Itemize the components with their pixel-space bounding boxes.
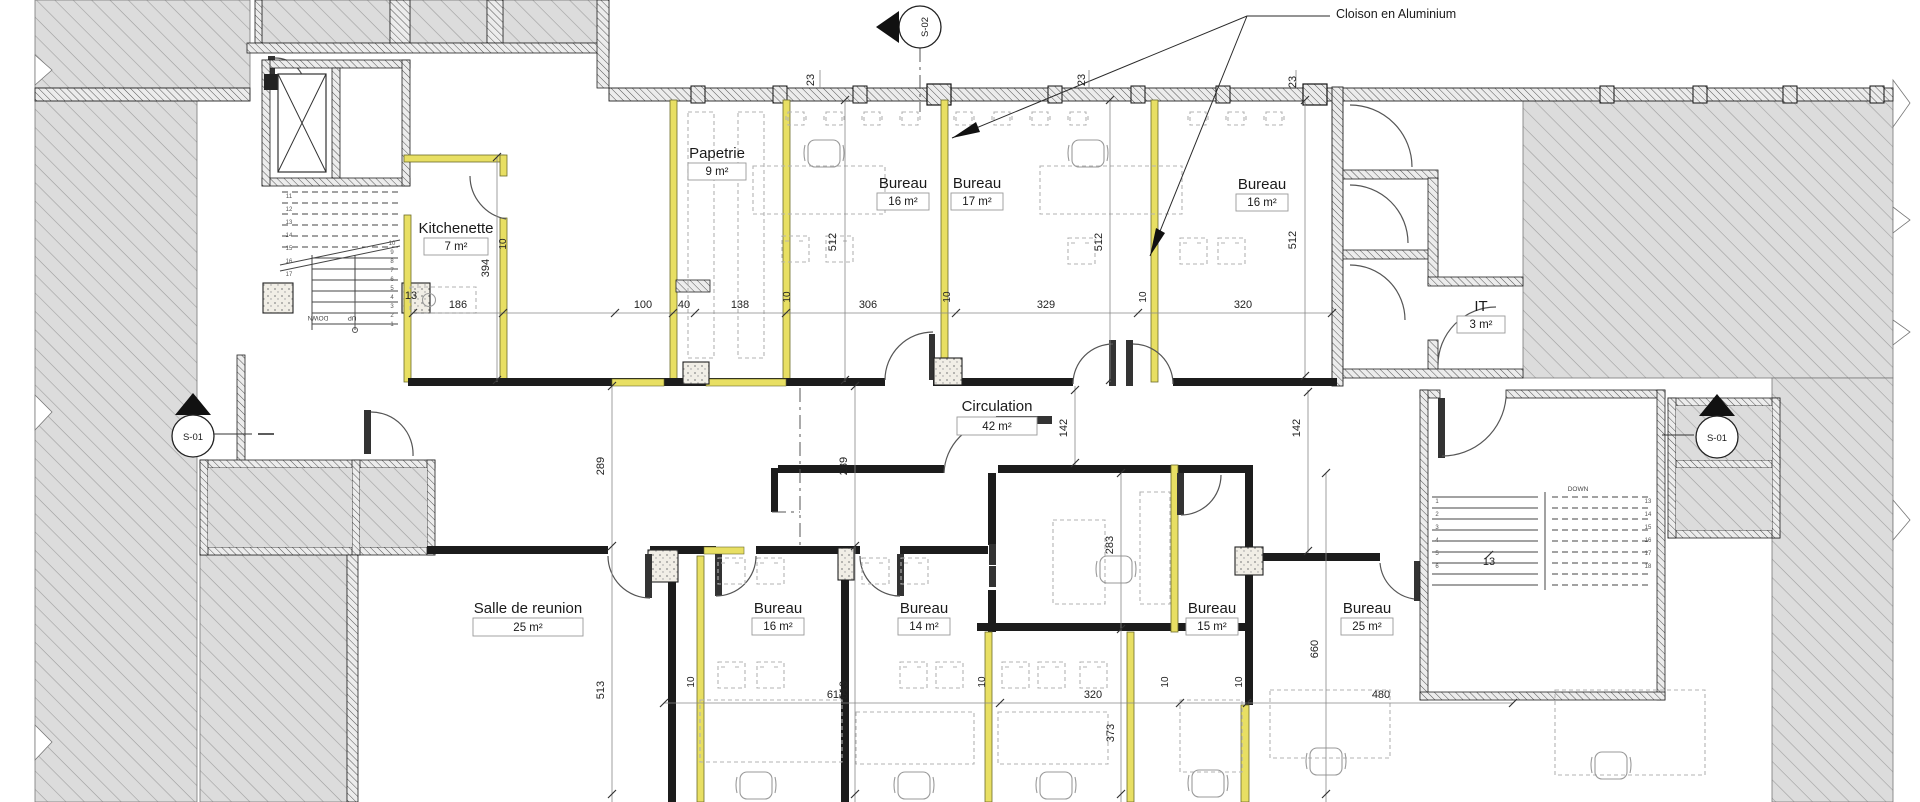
partition-bottom-2 xyxy=(985,632,992,802)
dim: 320 xyxy=(1234,299,1252,311)
stair-tread-number: 18 xyxy=(1645,564,1652,570)
room-name: IT xyxy=(1474,298,1487,315)
dim: 329 xyxy=(1037,299,1055,311)
room-area: 14 m² xyxy=(909,621,939,633)
room-area: 17 m² xyxy=(962,196,992,208)
wall-stub-papetrie xyxy=(676,280,710,292)
stair-tread-number: 9 xyxy=(390,250,394,256)
stair-tread-number: 3 xyxy=(390,304,394,310)
stair-tread-number: 6 xyxy=(1435,564,1439,570)
dim: 13 xyxy=(405,290,417,302)
stair-tread-number: 11 xyxy=(286,194,293,200)
elevator-core xyxy=(262,60,410,186)
stair-tread-number: 15 xyxy=(1645,525,1652,531)
dim: 289 xyxy=(838,457,850,475)
partition-bottom-1 xyxy=(697,556,704,802)
wall-b15-right xyxy=(1245,465,1253,705)
room-name: Bureau xyxy=(1188,600,1236,617)
dim: 612 xyxy=(827,689,845,701)
room-bureau-16-top2: Bureau 16 m² xyxy=(1236,176,1288,211)
corridor-walls xyxy=(408,332,1421,601)
stair-left-numbers-right: 10987654321 xyxy=(389,241,396,328)
partition-bureau2 xyxy=(941,100,948,360)
dim: 289 xyxy=(595,457,607,475)
floor-plan-canvas: 10987654321 111213141516171819 DOWN UP xyxy=(0,0,1920,802)
column xyxy=(648,550,678,582)
door-arc-vestibule xyxy=(371,412,413,456)
dim: 23 xyxy=(1287,76,1299,88)
room-salle-de-reunion: Salle de reunion 25 m² xyxy=(473,600,583,636)
room-name: Bureau xyxy=(754,600,802,617)
dim: 13 xyxy=(1483,556,1495,568)
dim: 138 xyxy=(731,299,749,311)
dim: 10 xyxy=(498,238,509,250)
room-bureau-16-top1: Bureau 16 m² xyxy=(877,175,929,210)
dim: 320 xyxy=(1084,689,1102,701)
room-name: Circulation xyxy=(962,398,1033,415)
stair-tread-number: 17 xyxy=(286,272,293,278)
stair-tread-number: 16 xyxy=(1645,538,1652,544)
stair-tread-number: 4 xyxy=(390,295,394,301)
break-line-right xyxy=(1893,80,1910,540)
dim: 373 xyxy=(1105,724,1117,742)
dim: 512 xyxy=(1287,231,1299,249)
column xyxy=(263,283,293,313)
wall-right-of-offices xyxy=(1332,87,1343,386)
door-arc-kitchenette xyxy=(470,176,506,219)
partition-papetrie-left xyxy=(670,100,677,382)
room-area: 16 m² xyxy=(1247,197,1277,209)
stair-tread-number: 17 xyxy=(1645,551,1652,557)
it-block xyxy=(1343,105,1523,378)
stair-tread-number: 14 xyxy=(1645,512,1652,518)
stair-right-numbers-right: 131415161718 xyxy=(1645,499,1652,570)
room-name: Bureau xyxy=(879,175,927,192)
wall-salle-right xyxy=(668,582,676,802)
stair-tread-number: 13 xyxy=(286,220,293,226)
stair-break-line xyxy=(280,240,400,271)
dim: 394 xyxy=(480,259,492,277)
dim: 283 xyxy=(1104,536,1116,554)
stair-left-down-label: DOWN xyxy=(307,314,328,321)
wall-top-left-band xyxy=(35,88,250,101)
wall-vertical-top xyxy=(597,0,609,88)
section-label-s01-left: S-01 xyxy=(183,432,203,443)
room-bureau-15: Bureau 15 m² xyxy=(1186,600,1238,635)
room-area: 25 m² xyxy=(1352,621,1382,633)
section-marker-s01-left: S-01 xyxy=(172,393,274,457)
partition-interior-right xyxy=(1171,465,1178,632)
room-name: Kitchenette xyxy=(418,220,493,237)
room-area: 25 m² xyxy=(513,622,543,634)
wall-salle-left xyxy=(347,555,358,802)
room-bureau-16-bottom: Bureau 16 m² xyxy=(752,600,804,635)
dim: 10 xyxy=(1138,291,1149,303)
room-name: Salle de reunion xyxy=(474,600,582,617)
stair-tread-number: 2 xyxy=(1435,512,1439,518)
hatch-right-lower xyxy=(1772,378,1893,802)
dim: 10 xyxy=(686,676,697,688)
dim: 306 xyxy=(859,299,877,311)
room-bureau-25: Bureau 25 m² xyxy=(1341,600,1393,635)
hatch-right-block xyxy=(1523,100,1893,378)
stair-right-numbers-left: 123456 xyxy=(1435,499,1439,570)
room-papetrie: Papetrie 9 m² xyxy=(688,145,746,180)
hatch-left-column xyxy=(35,100,197,802)
dim: 10 xyxy=(782,291,793,303)
dim: 512 xyxy=(1093,233,1105,251)
double-door-leaf xyxy=(1126,340,1133,386)
stair-tread-number: 2 xyxy=(390,313,394,319)
room-area: 15 m² xyxy=(1197,621,1227,633)
dim: 23 xyxy=(1076,74,1088,86)
hatch-top-left xyxy=(35,0,250,88)
stair-tread-number: 14 xyxy=(286,233,293,239)
room-area: 3 m² xyxy=(1470,319,1493,331)
section-label-s02: S-02 xyxy=(920,17,931,37)
stair-tread-number: 8 xyxy=(390,259,394,265)
column xyxy=(683,362,709,384)
floor-plan-svg: 10987654321 111213141516171819 DOWN UP xyxy=(0,0,1920,802)
dim: 23 xyxy=(805,74,817,86)
partition-bottom-3 xyxy=(1127,632,1134,802)
wall-band-upper xyxy=(247,43,609,53)
dim: 100 xyxy=(634,299,652,311)
dim: 142 xyxy=(1058,419,1070,437)
stair-tread-number: 13 xyxy=(1645,499,1652,505)
column xyxy=(934,358,962,385)
annotation-text: Cloison en Aluminium xyxy=(1336,7,1456,21)
stair-tread-number: 10 xyxy=(389,241,396,247)
room-name: Papetrie xyxy=(689,145,745,162)
room-bureau-14: Bureau 14 m² xyxy=(898,600,950,635)
room-area: 7 m² xyxy=(445,241,468,253)
door-leaf-vestibule xyxy=(364,410,371,454)
stair-tread-number: 15 xyxy=(286,246,293,252)
dim: 10 xyxy=(1234,676,1245,688)
section-label-s01-right: S-01 xyxy=(1707,433,1727,444)
room-name: Bureau xyxy=(1238,176,1286,193)
stair-left-up-label: UP xyxy=(347,314,356,321)
dim: 512 xyxy=(827,233,839,251)
dim: 480 xyxy=(1372,689,1390,701)
room-area: 42 m² xyxy=(982,421,1012,433)
room-area: 16 m² xyxy=(763,621,793,633)
room-name: Bureau xyxy=(1343,600,1391,617)
dim: 40 xyxy=(678,299,690,311)
column xyxy=(838,548,854,580)
dim: 186 xyxy=(449,299,467,311)
dim: 142 xyxy=(1291,419,1303,437)
dim: 10 xyxy=(977,676,988,688)
stair-tread-number: 1 xyxy=(390,322,394,328)
room-name: Bureau xyxy=(953,175,1001,192)
dim: 10 xyxy=(942,291,953,303)
aluminium-partitions-top xyxy=(670,100,1158,382)
room-it: IT 3 m² xyxy=(1457,298,1505,333)
stair-right-down-label: DOWN xyxy=(1568,486,1589,493)
stair-tread-number: 1 xyxy=(1435,499,1439,505)
dim: 513 xyxy=(595,681,607,699)
column xyxy=(1235,547,1263,575)
dim: 10 xyxy=(1160,676,1171,688)
room-kitchenette: Kitchenette 7 m² xyxy=(418,220,493,255)
room-name: Bureau xyxy=(900,600,948,617)
dim: 660 xyxy=(1309,640,1321,658)
room-area: 16 m² xyxy=(888,196,918,208)
room-bureau-17: Bureau 17 m² xyxy=(951,175,1003,210)
stair-tread-number: 12 xyxy=(286,207,293,213)
annotation-cloison: Cloison en Aluminium xyxy=(952,7,1456,256)
hatch-bottom-left xyxy=(200,555,347,802)
stair-tread-number: 16 xyxy=(286,259,293,265)
door-arc-stair-lobby xyxy=(1442,398,1506,456)
room-area: 9 m² xyxy=(706,166,729,178)
